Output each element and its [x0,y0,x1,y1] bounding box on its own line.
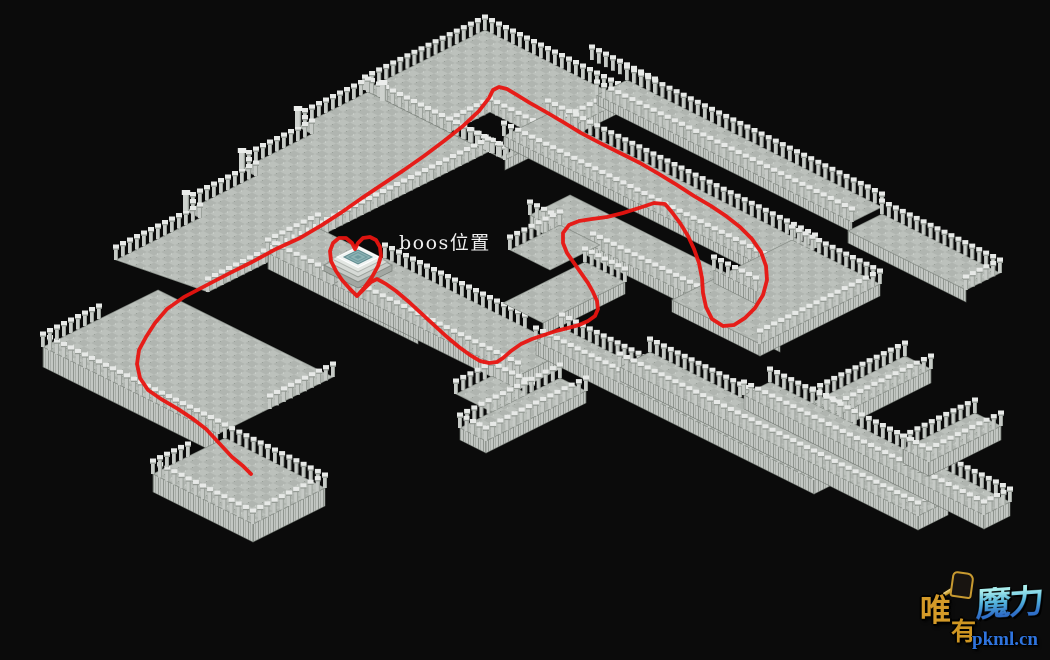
maze-map-canvas: boos位置 [0,0,1050,660]
maze-geometry [40,15,1013,543]
game-map-screenshot: boos位置 唯 有 魔力 pkml.cn [0,0,1050,660]
boss-label: boos位置 [399,232,491,254]
watermark-logo: 唯 有 魔力 pkml.cn [918,570,1050,660]
map-piece-right-block-2 [900,398,1004,477]
map-piece-left-room [40,290,336,454]
map-piece-left-room-arm [150,423,328,543]
watermark-site-url: pkml.cn [972,630,1038,649]
watermark-brand: 魔力 [976,584,1043,624]
knight-helmet-icon [949,571,974,600]
watermark-char-wei: 唯 [920,596,951,627]
